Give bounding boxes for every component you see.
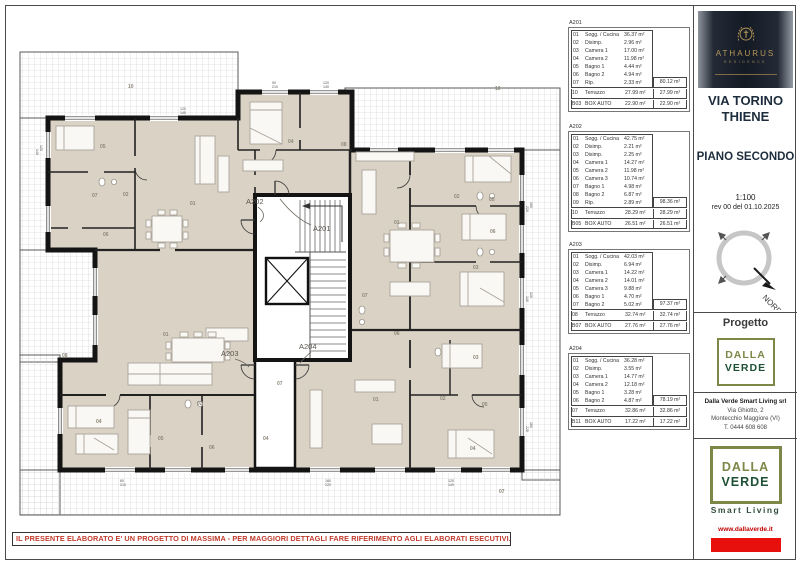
room-label: 04: [263, 436, 269, 442]
room-label: 05: [158, 436, 164, 442]
room-label: 01: [394, 220, 400, 226]
extra-rows: 10Terrazzo28.29 m²28.29 m²B05BOX AUTO26.…: [571, 209, 687, 229]
room-label: 04: [288, 139, 294, 145]
room-label: 10: [495, 86, 501, 92]
table-row: 07Bagno 25.02 m²: [572, 301, 652, 309]
room-label: 02: [123, 192, 129, 198]
disclaimer-note: IL PRESENTE ELABORATO E' UN PROGETTO DI …: [12, 532, 511, 546]
brand-rule: [715, 74, 777, 75]
opening-dim-label: 140: [525, 296, 529, 302]
table-row: 09Rip.2.89 m²: [572, 199, 652, 207]
table-row: 05Camera 211.98 m²: [572, 167, 652, 175]
subtotal-cell: 78.19 m²: [653, 395, 687, 406]
room-label: 06: [209, 445, 215, 451]
table-row: B03BOX AUTO22.90 m²22.90 m²: [571, 100, 687, 110]
red-brand-bar: [711, 538, 781, 552]
table-row: 02Disimp.3.55 m²: [572, 365, 652, 373]
unit-label: A201: [313, 224, 331, 233]
residence-name: ATHAURUS: [716, 49, 775, 58]
room-label: 07: [499, 489, 505, 495]
residence-logo: ATHAURUS RESIDENCE: [698, 11, 793, 88]
subtotal-cell: 80.12 m²: [653, 77, 687, 88]
company-address: Dalla Verde Smart Living srl Via Ghiotto…: [694, 398, 797, 432]
room-label: 07: [362, 293, 368, 299]
divider: [694, 438, 797, 439]
revision-label: rev 00 del 01.10.2025: [694, 204, 797, 211]
dalla-verde-logo-large: DALLA VERDE: [710, 446, 782, 504]
table-row: 04Camera 214.01 m²: [572, 277, 652, 285]
extra-rows: 10Terrazzo27.99 m²27.99 m²B03BOX AUTO22.…: [571, 89, 687, 109]
opening-dim-label: 210: [120, 483, 126, 487]
table-row: B07BOX AUTO27.76 m²27.76 m²: [571, 322, 687, 332]
table-row: 03Disimp.2.25 m²: [572, 151, 652, 159]
room-label: 02: [197, 401, 203, 407]
unit-id: A202: [569, 124, 690, 130]
room-label: 01: [190, 201, 196, 207]
table-row: 01Sogg. / Cucina42.03 m²: [572, 253, 652, 261]
room-label: 05: [482, 402, 488, 408]
opening-dim-label: 140: [180, 111, 186, 115]
dalla-verde-logo: DALLA VERDE: [717, 338, 775, 386]
room-label: 06: [394, 331, 400, 337]
room-rows: 01Sogg. / Cucina42.03 m²02Disimp.6.94 m²…: [571, 252, 653, 310]
area-tables-column: A201 01Sogg. / Cucina36.37 m²02Disimp.2.…: [566, 5, 692, 560]
opening-dim-label: 220: [525, 206, 529, 212]
room-rows: 01Sogg. / Cucina36.37 m²02Disimp.2.96 m²…: [571, 30, 653, 88]
opening-dim-label: 210: [272, 85, 278, 89]
table-row: 04Camera 212.18 m²: [572, 381, 652, 389]
table-row: 06Bagno 24.87 m²: [572, 397, 652, 405]
website-link[interactable]: www.dallaverde.it: [694, 526, 797, 533]
opening-dim-label: 140: [448, 483, 454, 487]
room-label: 10: [128, 84, 134, 90]
opening-dim-label: 140: [323, 85, 329, 89]
title-block: ATHAURUS RESIDENCE VIA TORINO THIENE PIA…: [694, 5, 797, 560]
table-row: 01Sogg. / Cucina42.75 m²: [572, 135, 652, 143]
table-row: 07Terrazzo32.86 m²32.86 m²: [571, 407, 687, 417]
north-label: NORD: [760, 293, 783, 310]
room-rows: 01Sogg. / Cucina42.75 m²02Disimp.2.21 m²…: [571, 134, 653, 208]
room-label: 08: [341, 142, 347, 148]
table-row: 05Camera 39.88 m²: [572, 285, 652, 293]
room-label: 07: [92, 193, 98, 199]
room-label: 06: [103, 232, 109, 238]
table-row: 07Rip.2.33 m²: [572, 79, 652, 87]
room-label: 05: [489, 197, 495, 203]
table-row: 03Camera 114.22 m²: [572, 269, 652, 277]
table-row: 05Bagno 13.28 m²: [572, 389, 652, 397]
opening-dim-label: 140: [35, 149, 39, 155]
table-row: 03Camera 114.77 m²: [572, 373, 652, 381]
scale-label: 1:100: [694, 193, 797, 202]
unit-label: A203: [221, 349, 239, 358]
opening-dim-label: 220: [325, 483, 331, 487]
table-row: 04Camera 211.98 m²: [572, 55, 652, 63]
unit-id: A204: [569, 346, 690, 352]
table-row: 04Camera 114.27 m²: [572, 159, 652, 167]
room-rows: 01Sogg. / Cucina36.28 m²02Disimp.3.55 m²…: [571, 356, 653, 406]
subtotal-cell: 97.37 m²: [653, 299, 687, 310]
unit-id: A201: [569, 20, 690, 26]
divider: [694, 312, 797, 313]
table-row: 03Camera 117.00 m²: [572, 47, 652, 55]
room-label: 02: [440, 396, 446, 402]
table-row: 01Sogg. / Cucina36.37 m²: [572, 31, 652, 39]
table-row: 02Disimp.2.21 m²: [572, 143, 652, 151]
table-row: B05BOX AUTO26.51 m²26.51 m²: [571, 220, 687, 230]
residence-subtitle: RESIDENCE: [724, 60, 767, 64]
unit-id: A203: [569, 242, 690, 248]
area-table-a201: A201 01Sogg. / Cucina36.37 m²02Disimp.2.…: [568, 20, 690, 112]
room-label: 04: [96, 419, 102, 425]
progetto-heading: Progetto: [694, 317, 797, 329]
unit-label: A202: [246, 197, 264, 206]
area-table-a202: A202 01Sogg. / Cucina42.75 m²02Disimp.2.…: [568, 124, 690, 232]
table-row: 02Disimp.2.96 m²: [572, 39, 652, 47]
room-label: 05: [100, 144, 106, 150]
divider: [694, 392, 797, 393]
room-label: 04: [470, 446, 476, 452]
table-row: 08Bagno 26.87 m²: [572, 191, 652, 199]
room-label: 03: [473, 265, 479, 271]
north-compass: NORD: [694, 218, 797, 310]
extra-rows: 08Terrazzo32.74 m²32.74 m²B07BOX AUTO27.…: [571, 311, 687, 331]
opening-dim-label: 220: [525, 426, 529, 432]
floor-plan-sheet: { "page": { "disclaimer": "IL PRESENTE E…: [0, 0, 800, 565]
project-title: VIA TORINO THIENE: [694, 93, 797, 125]
room-label: 01: [373, 397, 379, 403]
table-row: 06Camera 310.74 m²: [572, 175, 652, 183]
table-row: 07Bagno 14.98 m²: [572, 183, 652, 191]
table-row: 10Terrazzo28.29 m²28.29 m²: [571, 209, 687, 219]
area-table-a204: A204 01Sogg. / Cucina36.28 m²02Disimp.3.…: [568, 346, 690, 430]
subtotal-cell: 98.36 m²: [653, 197, 687, 208]
room-label: 03: [473, 355, 479, 361]
floor-plan-drawing: 1004081005010702060205060103070801020405…: [10, 10, 562, 528]
room-label: 08: [62, 353, 68, 359]
smart-living-label: Smart Living: [694, 505, 797, 515]
room-label: 01: [163, 332, 169, 338]
table-row: 02Disimp.6.94 m²: [572, 261, 652, 269]
unit-label: A204: [299, 342, 317, 351]
table-row: 05Bagno 14.44 m²: [572, 63, 652, 71]
table-row: B11BOX AUTO17.22 m²17.22 m²: [571, 418, 687, 428]
table-row: 08Terrazzo32.74 m²32.74 m²: [571, 311, 687, 321]
table-row: 10Terrazzo27.99 m²27.99 m²: [571, 89, 687, 99]
elevator: [266, 258, 308, 304]
room-label: 07: [277, 381, 283, 387]
table-row: 06Bagno 24.94 m²: [572, 71, 652, 79]
drawing-title: PIANO SECONDO: [694, 151, 797, 163]
room-label: 02: [454, 194, 460, 200]
table-row: 06Bagno 14.70 m²: [572, 293, 652, 301]
table-row: 01Sogg. / Cucina36.28 m²: [572, 357, 652, 365]
area-table-a203: A203 01Sogg. / Cucina42.03 m²02Disimp.6.…: [568, 242, 690, 334]
laurel-emblem-icon: [735, 24, 757, 46]
room-label: 06: [490, 229, 496, 235]
extra-rows: 07Terrazzo32.86 m²32.86 m²B11BOX AUTO17.…: [571, 407, 687, 427]
